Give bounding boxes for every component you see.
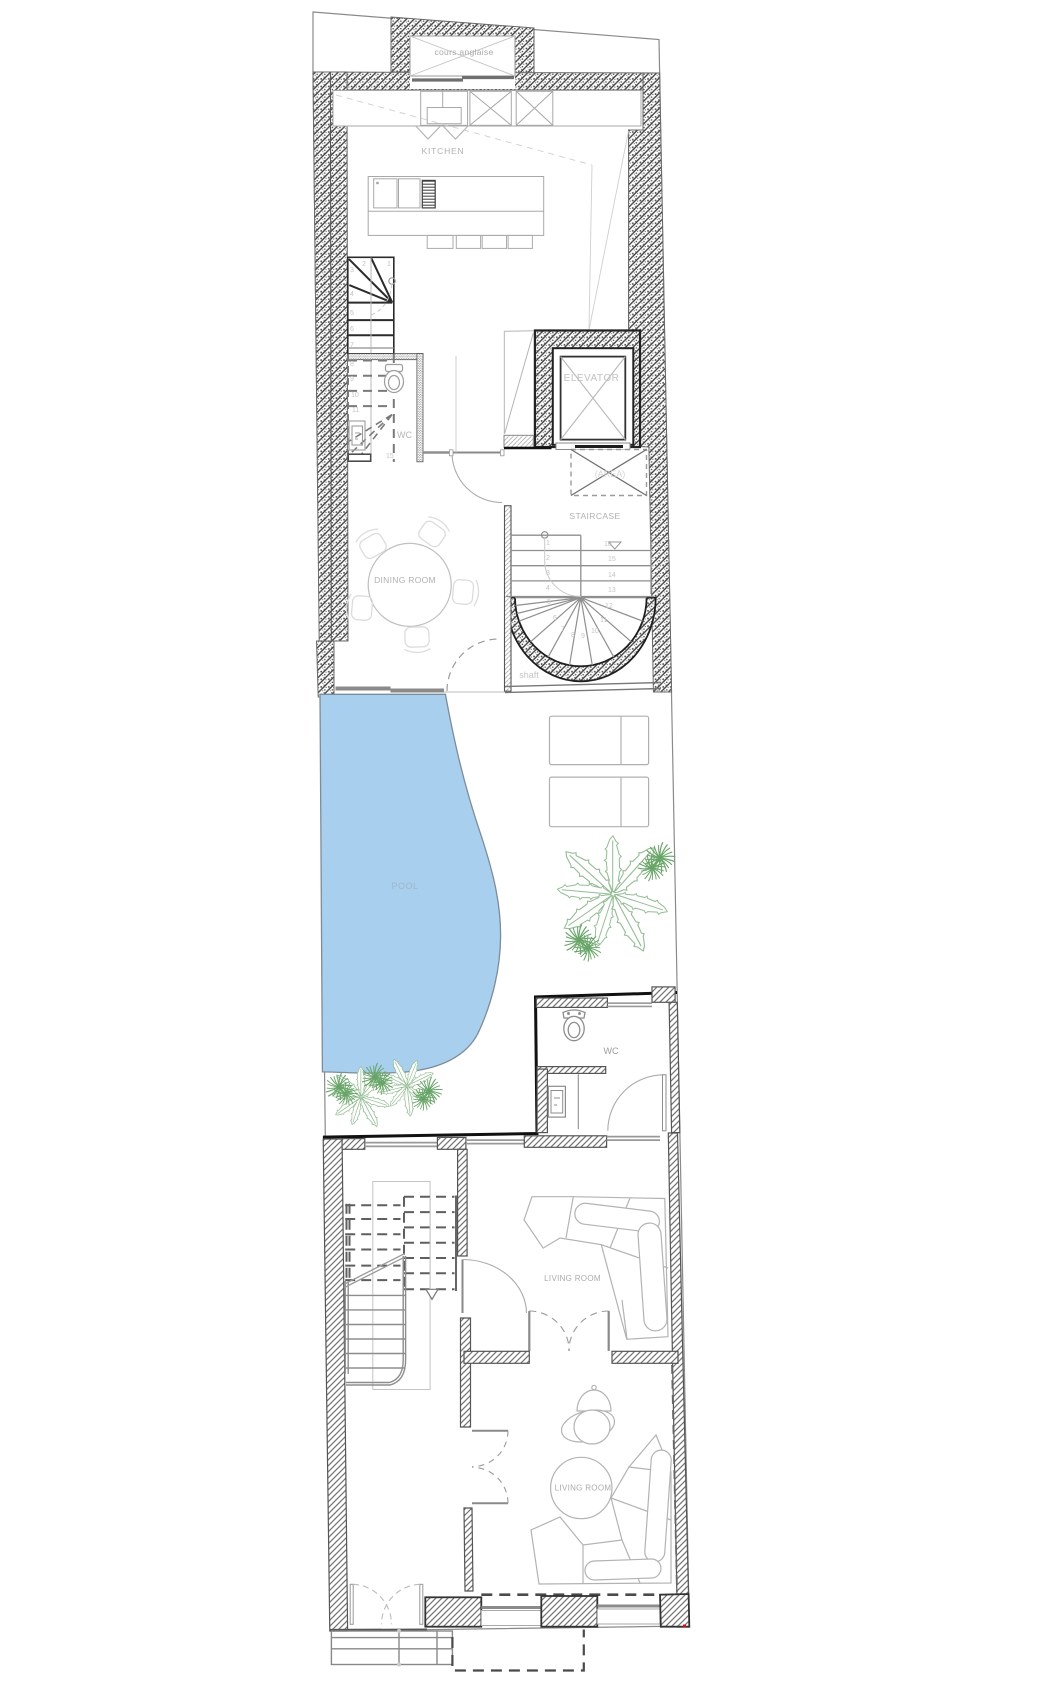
svg-text:15: 15 [608, 556, 616, 563]
svg-text:5: 5 [547, 599, 551, 606]
svg-text:7: 7 [561, 626, 565, 633]
svg-text:3: 3 [350, 267, 354, 274]
svg-text:10: 10 [351, 392, 359, 399]
svg-text:STAIRCASE: STAIRCASE [569, 511, 620, 521]
svg-text:cours anglaise: cours anglaise [434, 47, 493, 57]
svg-text:4: 4 [350, 291, 354, 298]
svg-text:10: 10 [591, 628, 599, 635]
svg-text:shaft: shaft [519, 670, 539, 680]
svg-text:ELEVATOR: ELEVATOR [564, 373, 620, 384]
svg-text:16: 16 [604, 541, 612, 548]
svg-text:2: 2 [362, 261, 366, 268]
svg-text:5: 5 [350, 310, 354, 317]
svg-text:11: 11 [600, 617, 607, 624]
svg-text:11: 11 [352, 407, 359, 414]
svg-text:WC: WC [604, 1046, 619, 1056]
svg-text:3: 3 [546, 570, 550, 577]
svg-text:12: 12 [605, 603, 613, 610]
svg-text:4: 4 [546, 585, 550, 592]
svg-text:DINING ROOM: DINING ROOM [374, 575, 436, 585]
svg-text:LIVING ROOM: LIVING ROOM [544, 1274, 601, 1283]
svg-text:1: 1 [387, 261, 391, 268]
svg-text:7: 7 [350, 342, 354, 349]
svg-text:8: 8 [571, 632, 575, 639]
svg-text:(AREA): (AREA) [595, 469, 626, 479]
svg-text:WC: WC [397, 430, 412, 440]
svg-text:15: 15 [386, 453, 394, 460]
svg-text:9: 9 [350, 376, 354, 383]
svg-text:KITCHEN: KITCHEN [422, 146, 465, 156]
svg-text:14: 14 [608, 572, 616, 579]
svg-text:9: 9 [581, 633, 585, 640]
svg-text:8: 8 [350, 361, 354, 368]
svg-text:6: 6 [350, 326, 354, 333]
svg-text:6: 6 [553, 615, 557, 622]
svg-text:13: 13 [608, 587, 616, 594]
svg-text:1: 1 [546, 540, 550, 547]
svg-text:LIVING ROOM: LIVING ROOM [555, 1484, 612, 1493]
svg-text:POOL: POOL [391, 881, 418, 891]
svg-text:2: 2 [546, 555, 550, 562]
